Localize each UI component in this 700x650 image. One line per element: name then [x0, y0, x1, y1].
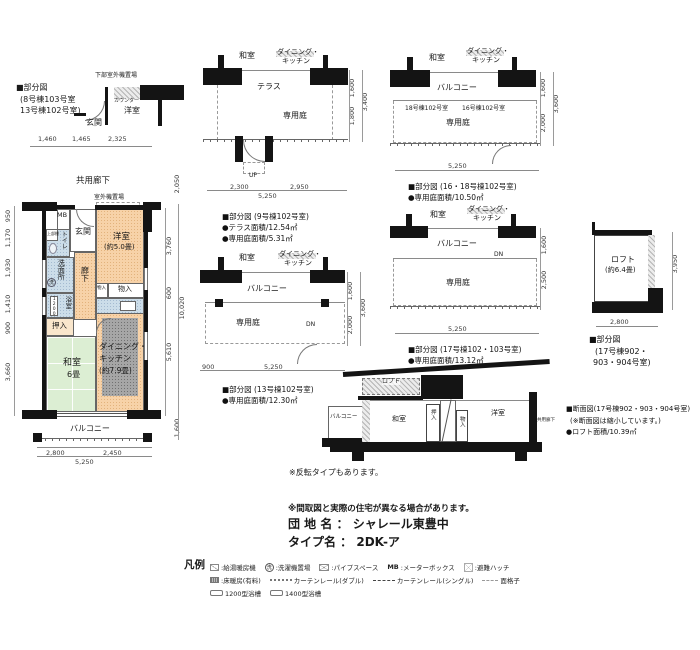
legend-row-2: :床暖房(有料) カーテンレール(ダブル) カーテンレール(シングル) 面格子 [210, 575, 520, 585]
wall [648, 288, 663, 302]
label-western-room-size: (約5.0畳) [104, 244, 135, 251]
legend-item: :避難ハッチ [464, 562, 510, 572]
wall-line [242, 70, 310, 71]
legend-item: カーテンレール(ダブル) [270, 575, 364, 585]
garden-fence [390, 306, 540, 309]
dim: 2,050 [173, 169, 181, 199]
label-dk-line3: (約7.9畳) [99, 367, 132, 375]
label-loft: ロフト [611, 256, 635, 264]
dimension-line [362, 70, 363, 142]
wall [22, 410, 57, 419]
balcony-post [143, 433, 152, 442]
label-up: UP [249, 173, 257, 179]
wall [406, 214, 412, 226]
caption: ●ロフト面積/10.39㎡ [566, 427, 637, 437]
label-closet: 押入 [52, 322, 67, 330]
wall [323, 55, 328, 69]
gate-post [265, 136, 273, 162]
label-bath-size: 1200 [51, 297, 56, 317]
label-entrance: 玄関 [75, 228, 91, 236]
dim: 1,170 [4, 223, 12, 253]
dim: 5,250 [448, 325, 467, 333]
gate-door-swing [297, 344, 317, 364]
label-balcony: バルコニー [330, 415, 357, 421]
outer-wall [362, 400, 370, 442]
dim: 5,250 [448, 162, 467, 170]
dimension-line [672, 232, 673, 310]
wall [407, 57, 413, 70]
type-name-label: タイプ名 ： [288, 535, 352, 549]
curtain-rail-single-icon [373, 580, 395, 581]
bathtub-1200-icon [210, 590, 223, 596]
label-japanese-room: 和室 [430, 211, 446, 219]
wall [95, 205, 144, 210]
bathtub-1400-icon [270, 590, 283, 596]
legend-label: 1400型浴槽 [285, 588, 321, 598]
label-lower-outdoor-unit: 下部室外機置場 [95, 73, 137, 79]
dimension-line [30, 146, 152, 147]
dim: 1,460 [38, 135, 57, 143]
dim: 1,465 [72, 135, 91, 143]
estate-name-row: 団 地 名 ： シャレール東豊中 [288, 518, 449, 531]
label-dk-line2: キッチン [472, 57, 500, 64]
sliding-window [57, 413, 127, 417]
dimension-line [37, 456, 152, 457]
legend-label: :洗濯機置場 [276, 562, 311, 572]
estate-name-label: 団 地 名 ： [288, 517, 349, 531]
caption: ■部分図 (17号棟102・103号室) [408, 344, 522, 355]
label-dk-line2: キッチン [473, 215, 501, 222]
window [42, 260, 46, 288]
corridor [74, 252, 96, 320]
dim: 1,930 [4, 253, 12, 283]
caption: (8号棟103号室 [20, 96, 75, 104]
label-balcony: バルコニー [437, 240, 477, 248]
dimension-line [347, 272, 348, 346]
dimension-line [165, 208, 166, 416]
label-japanese-room: 和室 [239, 254, 255, 262]
legend-label: :メーターボックス [401, 562, 455, 572]
lattice-icon [482, 580, 498, 581]
wall [57, 205, 75, 209]
label-balcony: バルコニー [247, 285, 287, 293]
garden-boundary [205, 304, 345, 344]
window [42, 297, 46, 315]
label-japanese-room: 和室 [239, 52, 255, 60]
caption: ■断面図(17号棟902・903・904号室) [566, 404, 690, 414]
dimension-line [540, 72, 541, 146]
kitchen-sink [120, 301, 136, 311]
wall [498, 70, 536, 87]
label-common-corridor: 共用廊下 [76, 177, 110, 186]
garden-boundary [393, 259, 537, 306]
caption: ■部分図 (13号棟102号室) [222, 384, 314, 395]
legend-item: 面格子 [482, 575, 520, 585]
legend-item: 1200型浴槽 [210, 588, 261, 598]
wall [127, 410, 161, 419]
estate-name-value: シャレール東豊中 [353, 517, 449, 531]
label-counter: カウンター [114, 99, 139, 104]
loft-wall-mass [421, 375, 463, 399]
dimension-line [395, 333, 539, 334]
label-balcony: バルコニー [437, 84, 477, 92]
caption: ■部分図 (9号棟102号室) [222, 211, 309, 222]
legend-item: :給湯暖房機 [210, 562, 256, 572]
wall [512, 57, 517, 70]
legend-row-3: 1200型浴槽 1400型浴槽 [210, 588, 321, 598]
gate-door-swing [492, 145, 511, 164]
wall-line [430, 72, 498, 73]
floorplan-sheet: ■部分図 (8号棟103号室 13号棟102号室) 下部室外機置場 カウンター … [0, 0, 700, 650]
caption: 903・904号室) [593, 357, 651, 368]
wall [158, 98, 162, 126]
wall [511, 214, 516, 226]
washer-place-icon: 洗 [265, 563, 274, 572]
caption: (17号棟902・ [595, 346, 648, 357]
label-storage: 物入 [458, 416, 464, 427]
caption: (※断面図は縮小しています。) [570, 416, 661, 426]
dimension-line [540, 228, 541, 310]
dimension-line [553, 72, 554, 146]
label-dk-line1: ダイニング・ [467, 48, 509, 55]
wall [498, 226, 536, 238]
label-closet: 押入 [429, 409, 435, 420]
dimension-line [207, 190, 347, 191]
dim: 1,600 [173, 413, 181, 443]
label-japanese-room-size: 6畳 [67, 371, 80, 379]
caption: ●テラス面積/12.54㎡ [222, 222, 297, 233]
legend-label: カーテンレール(シングル) [397, 575, 474, 585]
label-dk-line1: ダイニング・ [468, 206, 510, 213]
label-western-room: 洋室 [491, 410, 505, 417]
dim: 5,250 [258, 192, 277, 200]
label-storage: 物入 [118, 286, 132, 293]
legend-item: カーテンレール(シングル) [373, 575, 474, 585]
label-garden: 専用庭 [283, 112, 307, 120]
label-common-corridor: 共用廊下 [537, 419, 555, 424]
gate-door-swing [243, 140, 265, 162]
caption: ●専用庭面積/12.30㎡ [222, 395, 298, 406]
legend-label: :給湯暖房機 [221, 562, 256, 572]
wall [218, 257, 224, 270]
window [144, 332, 148, 360]
legend-label: カーテンレール(ダブル) [294, 575, 364, 585]
wall [390, 70, 430, 87]
label-dk-line2: キッチン [282, 58, 310, 65]
escape-hatch-icon [464, 563, 473, 572]
wall [390, 226, 428, 238]
wall [203, 68, 242, 85]
dim: 1,600 [540, 230, 548, 260]
dim: 2,325 [108, 135, 127, 143]
caption: 13号棟102号室) [20, 107, 81, 115]
caption: ■部分図 [589, 334, 621, 345]
pillar [515, 452, 527, 461]
wall-line [428, 228, 498, 229]
legend-item: 1400型浴槽 [270, 588, 321, 598]
type-name-value: 2DK-ア [356, 535, 400, 549]
floor-slab [330, 442, 542, 452]
note-reverse-type: ※反転タイプもあります。 [289, 469, 383, 477]
label-japanese-room: 和室 [63, 359, 81, 368]
type-name-row: タイプ名 ： 2DK-ア [288, 536, 400, 549]
legend-label: 面格子 [500, 575, 520, 585]
label-dk-line2: キッチン [99, 355, 131, 363]
balcony-post [33, 433, 42, 442]
label-loft-size: (約6.4畳) [605, 267, 636, 274]
caption: ■部分図 (16・18号棟102号室) [408, 181, 517, 192]
dimension-line [178, 204, 179, 440]
hot-water-heater-icon [210, 564, 219, 571]
wall [529, 392, 537, 444]
gate-post [235, 136, 243, 162]
dim: 3,760 [165, 231, 173, 261]
label-japanese-room: 和室 [429, 54, 445, 62]
note-disclaimer: ※間取図と実際の住宅が異なる場合があります。 [288, 505, 474, 514]
label-outdoor-unit: 室外機置場 [94, 195, 124, 201]
label-meter-box: MB [57, 212, 67, 219]
label-toilet: トイレ [60, 231, 66, 249]
dimension-line [37, 447, 152, 448]
pillar [352, 452, 364, 461]
dimension-line [200, 370, 345, 371]
label-dk-line1: ダイニング・ [277, 49, 319, 56]
balcony-edge [38, 438, 152, 441]
label-japanese-room: 和室 [392, 416, 406, 423]
dim: 2,500 [540, 265, 548, 295]
dimension-line [596, 326, 658, 327]
wall-line [242, 272, 310, 273]
balcony-rail [328, 406, 363, 442]
dim: 2,800 [610, 318, 629, 326]
label-dk-line1: ダイニング・ [279, 251, 321, 258]
dim: 3,660 [4, 357, 12, 387]
legend-label: :パイプスペース [331, 562, 378, 572]
loft-opening [648, 235, 655, 290]
dim: 10,020 [178, 293, 186, 323]
wall [140, 85, 184, 100]
label-washroom: 洗面所 [57, 259, 64, 280]
caption: ●専用庭面積/10.50㎡ [408, 192, 484, 203]
label-upper-shelf: 上部棚 [47, 232, 59, 236]
label-dn: DN [306, 322, 315, 328]
meter-box-icon: MB [387, 563, 398, 571]
label-dk-line2: キッチン [284, 260, 312, 267]
wall [22, 202, 57, 211]
legend-item: 洗:洗濯機置場 [265, 562, 311, 572]
wall [218, 55, 224, 69]
wall [105, 87, 108, 125]
legend-title: 凡例 [184, 560, 205, 571]
legend-label: :床暖房(有料) [221, 575, 261, 585]
dim: 600 [165, 278, 173, 308]
curtain-rail-double-icon [270, 579, 292, 581]
dimension-line [14, 206, 15, 416]
label-balcony: バルコニー [70, 425, 110, 433]
caption: ●専用庭面積/5.31㎡ [222, 233, 293, 244]
label-storage-small: 物入 [97, 287, 106, 292]
wall [323, 257, 328, 270]
garden-boundary [393, 101, 537, 143]
label-western-room: 洋室 [113, 233, 130, 242]
dim: 900 [4, 313, 12, 343]
label-entrance: 玄関 [86, 119, 102, 127]
dimension-line [349, 70, 350, 142]
floor-heating-icon [210, 577, 219, 583]
label-corridor: 廊下 [80, 266, 88, 282]
garden-fence [203, 139, 348, 142]
legend-label: 1200型浴槽 [225, 588, 261, 598]
dimension-line [360, 272, 361, 346]
label-loft: ロフト [382, 379, 400, 385]
caption: ■部分図 [16, 84, 48, 92]
legend-item: :パイプスペース [319, 562, 378, 572]
wall [144, 204, 148, 418]
garden-fence [390, 143, 540, 146]
wall [310, 270, 345, 283]
dim: 5,610 [165, 337, 173, 367]
toilet-bowl [49, 243, 57, 254]
wall [200, 270, 242, 283]
dim: 5,250 [75, 458, 94, 466]
wall [592, 302, 663, 313]
label-dk-line1: ダイニング・ [99, 343, 147, 351]
window [144, 268, 148, 290]
washer-place-icon: 洗 [47, 278, 56, 287]
label-bathroom: 浴室 [64, 296, 71, 309]
legend-row-1: :給湯暖房機 洗:洗濯機置場 :パイプスペース MB:メーターボックス :避難ハ… [210, 562, 509, 572]
dimension-line [395, 170, 539, 171]
garden-boundary [217, 85, 333, 140]
legend-item: :床暖房(有料) [210, 575, 261, 585]
wall [310, 68, 348, 85]
label-western-room: 洋室 [124, 107, 140, 115]
legend-label: :避難ハッチ [475, 562, 510, 572]
legend-item: MB:メーターボックス [387, 562, 454, 572]
pipe-space-icon [319, 564, 329, 571]
